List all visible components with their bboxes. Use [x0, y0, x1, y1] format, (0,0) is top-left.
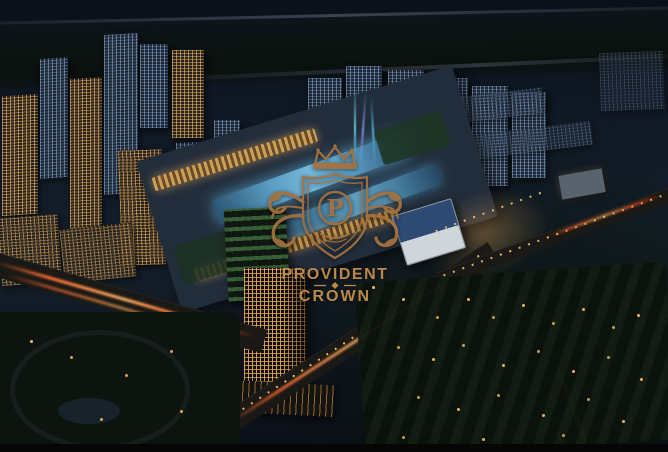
park-lights	[30, 340, 33, 343]
watermark-line1: PROVIDENT	[282, 266, 389, 283]
park-path	[10, 330, 190, 450]
flourish-right-icon	[367, 193, 401, 248]
monogram: P	[326, 195, 343, 222]
aerial-render: P PROVIDENT CROWN	[0, 0, 668, 452]
pond	[58, 398, 120, 424]
watermark-logo: P PROVIDENT CROWN	[258, 142, 412, 306]
watermark-line2: CROWN	[299, 288, 371, 305]
crown-icon	[313, 144, 357, 169]
flourish-left-icon	[269, 193, 303, 248]
shield-icon: P	[303, 174, 367, 258]
bottom-bar	[0, 444, 668, 452]
